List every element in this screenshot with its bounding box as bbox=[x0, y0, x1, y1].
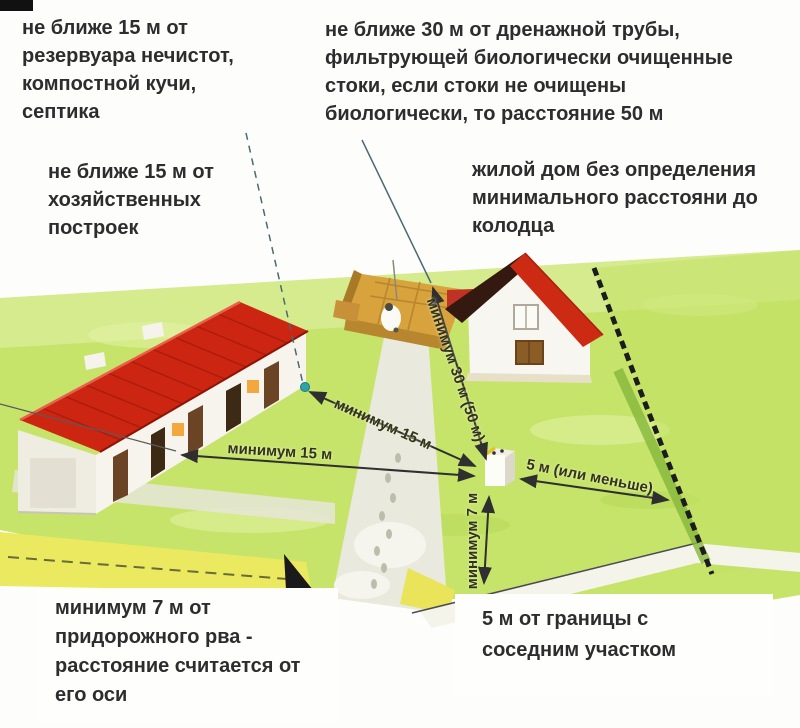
well-illustration bbox=[485, 448, 515, 486]
site-plan-diagram: не ближе 15 м от резервуара нечистот, ко… bbox=[0, 0, 800, 728]
path-white-patch bbox=[354, 522, 426, 568]
septic-point-marker bbox=[301, 383, 310, 392]
barn-lit-window bbox=[172, 423, 184, 436]
path-white-patch bbox=[334, 571, 390, 599]
corner-mark bbox=[0, 0, 33, 11]
leader-line-drainage bbox=[362, 140, 431, 283]
house-lower-window bbox=[516, 341, 543, 364]
barn-lit-window bbox=[247, 380, 259, 393]
annotation-house: жилой дом без определения минимального р… bbox=[472, 156, 758, 240]
house-upper-window bbox=[514, 305, 538, 329]
annotation-drainage: не ближе 30 м от дренажной трубы, фильтр… bbox=[325, 16, 733, 128]
dim-label-ditch-to-well: минимум 7 м bbox=[465, 488, 481, 594]
annotation-boundary: 5 м от границы с соседним участком bbox=[482, 604, 676, 666]
annotation-ditch: минимум 7 м от придорожного рва - рассто… bbox=[55, 594, 300, 710]
annotation-outbuildings: не ближе 15 м от хозяйственных построек bbox=[48, 158, 214, 242]
annotation-septic: не ближе 15 м от резервуара нечистот, ко… bbox=[22, 14, 234, 126]
